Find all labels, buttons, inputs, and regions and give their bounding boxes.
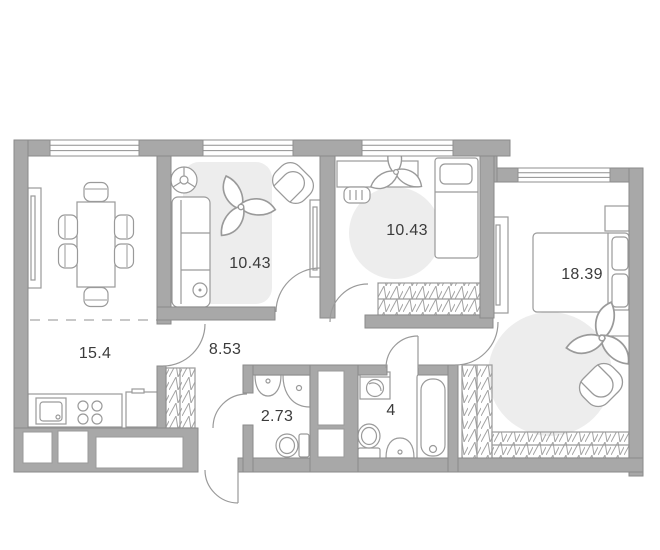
- room-label-kitchen-living: 15.4: [79, 345, 111, 363]
- single-bed: [435, 158, 478, 258]
- wall-niche: [318, 429, 344, 457]
- room-label-bedroom-3: 18.39: [561, 266, 603, 284]
- floor-plan: 15.4 10.43 10.43 18.39 8.53 2.73 4: [0, 0, 660, 550]
- desk-chair: [344, 187, 370, 203]
- room-label-bathroom: 2.73: [261, 408, 293, 426]
- wall-segment: [14, 140, 28, 472]
- wall-segment: [629, 168, 643, 476]
- window: [518, 168, 610, 182]
- entry-door-swing: [205, 470, 238, 503]
- wall-segment: [157, 307, 275, 320]
- washbasin: [386, 438, 414, 458]
- wall-segment: [139, 140, 203, 156]
- fan-icon: [171, 167, 197, 193]
- door-swing: [163, 324, 205, 366]
- dining-chair: [59, 215, 78, 239]
- fridge: [126, 389, 158, 427]
- mirror-wardrobe: [493, 217, 508, 313]
- toilet: [358, 424, 380, 459]
- dining-chair: [84, 288, 108, 307]
- room-label-bathroom-wc: 4: [386, 402, 395, 420]
- dining-chair: [84, 183, 108, 202]
- sideboard: [28, 188, 41, 288]
- dining-table: [77, 202, 115, 287]
- washbasin: [255, 375, 281, 396]
- wall-segment: [448, 365, 458, 472]
- wall-niche: [58, 431, 88, 463]
- wall-segment: [320, 156, 335, 318]
- wall-niche: [96, 437, 183, 468]
- sofa: [172, 197, 210, 307]
- room-label-bedroom-1: 10.43: [229, 255, 271, 273]
- room-label-hallway: 8.53: [209, 341, 241, 359]
- wall-segment: [157, 366, 166, 428]
- wardrobe: [378, 283, 480, 315]
- window: [50, 140, 139, 156]
- dining-chair: [115, 244, 134, 268]
- door-swing: [386, 336, 418, 368]
- wall-niche: [23, 432, 52, 463]
- wall-segment: [243, 365, 253, 393]
- wall-segment: [365, 315, 493, 328]
- wall-segment: [480, 156, 494, 318]
- wardrobe: [492, 432, 629, 458]
- nightstand: [605, 206, 629, 231]
- corner-shower: [283, 375, 310, 407]
- kitchen-sink: [36, 398, 66, 424]
- washing-machine: [360, 372, 390, 399]
- dining-chair: [115, 215, 134, 239]
- wall-segment: [497, 168, 518, 182]
- wall-segment: [453, 140, 510, 156]
- toilet: [276, 434, 309, 457]
- wall-segment: [243, 425, 253, 472]
- bathtub: [417, 374, 449, 461]
- wall-segment: [293, 140, 362, 156]
- wardrobe: [462, 365, 492, 460]
- window: [203, 140, 293, 156]
- room-label-bedroom-2: 10.43: [386, 222, 428, 240]
- window: [362, 140, 453, 156]
- wardrobe: [166, 368, 195, 428]
- dining-chair: [59, 244, 78, 268]
- wall-niche: [318, 371, 344, 425]
- wall-segment: [157, 156, 171, 324]
- door-swing: [213, 394, 247, 428]
- door-swing: [330, 284, 368, 322]
- wall-segment: [238, 458, 643, 472]
- kitchen-counter: [28, 389, 158, 427]
